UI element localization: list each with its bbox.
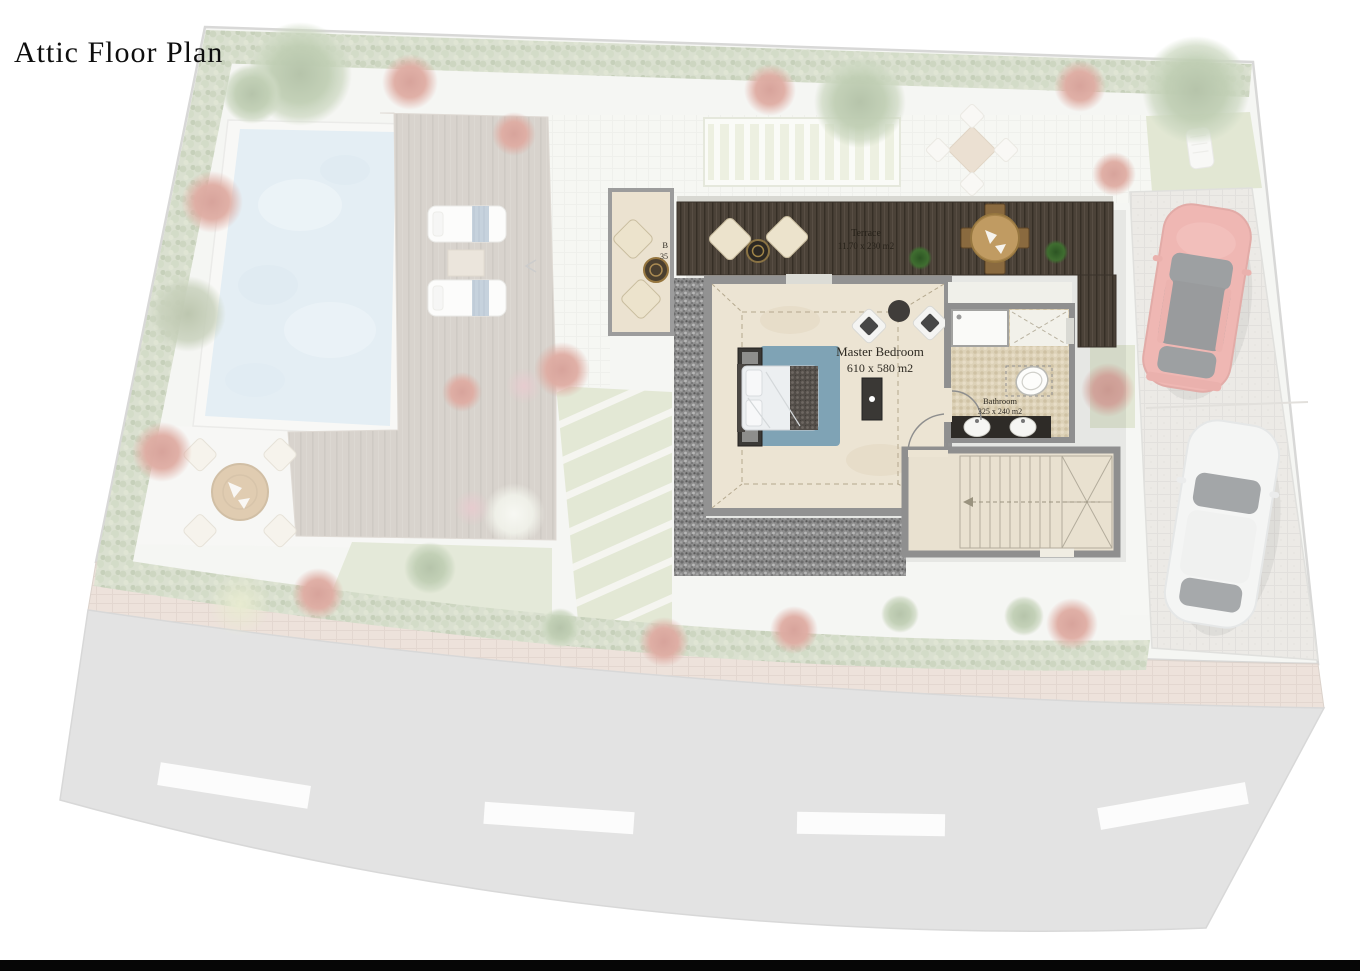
vanity-sinks xyxy=(951,416,1051,438)
balcony-label: B xyxy=(662,240,668,250)
bathroom-label: Bathroom xyxy=(983,396,1017,406)
potted-plant xyxy=(1044,240,1068,264)
pink-bush xyxy=(454,490,490,526)
floor-plan-graphic: B 35 xyxy=(0,0,1360,971)
terrace-dims: 11.70 x 230 m2 xyxy=(838,241,894,251)
tree xyxy=(1142,36,1250,144)
master-bedroom-label: Master Bedroom xyxy=(836,344,924,359)
potted-plant xyxy=(908,246,932,270)
bush xyxy=(881,595,919,633)
window xyxy=(786,274,832,284)
balcony: B 35 xyxy=(610,190,672,334)
door-opening xyxy=(1040,548,1074,557)
red-bush xyxy=(292,568,344,620)
bush xyxy=(1004,596,1044,636)
attic-floor: B 35 xyxy=(610,190,1126,576)
side-table xyxy=(888,300,910,322)
gravel-band xyxy=(674,518,906,576)
shower-drain-icon xyxy=(957,315,962,320)
plan-title: Attic Floor Plan xyxy=(14,36,223,70)
red-bush xyxy=(744,64,796,116)
deck-side-table xyxy=(448,250,484,276)
red-bush xyxy=(534,342,590,398)
stair-hall xyxy=(905,450,1117,557)
bush xyxy=(404,542,456,594)
gravel-band xyxy=(674,278,706,524)
balcony-dims: 35 xyxy=(660,252,668,261)
attic-floor-plan-page: B 35 xyxy=(0,0,1360,971)
bush xyxy=(540,608,580,648)
coffee-table xyxy=(644,258,668,282)
red-bush xyxy=(492,112,536,156)
terrace-label: Terrace xyxy=(851,228,881,239)
blanket xyxy=(790,366,818,430)
bed xyxy=(737,364,818,432)
red-bush xyxy=(1046,598,1098,650)
pillow xyxy=(746,370,762,396)
red-bush xyxy=(382,54,438,110)
master-bedroom-dims: 610 x 580 m2 xyxy=(847,361,913,375)
sun-lounger xyxy=(428,206,506,242)
sun-lounger xyxy=(428,280,506,316)
red-bush xyxy=(770,606,818,654)
bathroom: Bathroom 325 x 240 m2 xyxy=(944,282,1074,440)
bathroom-dims: 325 x 240 m2 xyxy=(978,407,1022,416)
pink-bush xyxy=(506,368,542,404)
bottom-border xyxy=(0,960,1360,971)
red-bush xyxy=(1092,152,1136,196)
red-bush xyxy=(181,171,243,233)
window xyxy=(1066,318,1074,344)
red-bush xyxy=(1054,60,1106,112)
tv-console xyxy=(862,378,882,420)
fire-bowl xyxy=(747,240,769,262)
red-bush xyxy=(639,617,689,667)
white-bush xyxy=(483,483,545,545)
red-bush xyxy=(132,422,192,482)
yellow-bush xyxy=(208,572,272,636)
tree xyxy=(222,64,282,124)
tree xyxy=(814,56,906,148)
red-bush xyxy=(442,372,482,412)
tree xyxy=(150,276,226,352)
